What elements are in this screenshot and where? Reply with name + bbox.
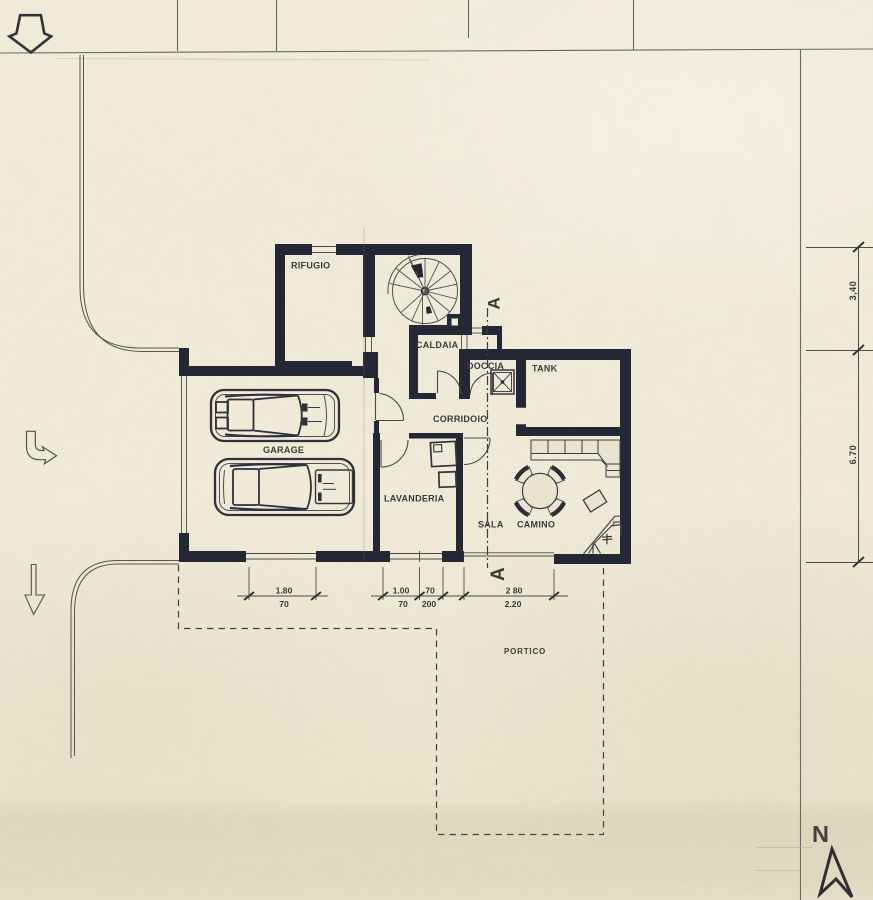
svg-text:3,40: 3,40 [848,281,858,301]
svg-text:PORTICO: PORTICO [504,647,546,656]
svg-text:CAMINO: CAMINO [517,520,555,530]
svg-text:GARAGE: GARAGE [263,445,304,455]
svg-text:CORRIDOIO: CORRIDOIO [433,414,488,424]
svg-text:LAVANDERIA: LAVANDERIA [384,494,445,504]
svg-text:2 80: 2 80 [506,586,523,596]
svg-text:6.70: 6.70 [848,445,858,465]
svg-text:A: A [485,297,504,309]
svg-text:70: 70 [398,599,408,609]
svg-text:A: A [488,567,509,581]
svg-text:70: 70 [279,599,289,609]
svg-text:RIFUGIO: RIFUGIO [291,261,330,271]
svg-text:1.00: 1.00 [393,586,410,596]
svg-text:2.20: 2.20 [505,599,522,609]
svg-text:DOCCIA: DOCCIA [467,361,504,371]
svg-text:1.80: 1.80 [276,586,293,596]
svg-text:CALDAIA: CALDAIA [416,340,459,350]
svg-text:SALA: SALA [478,520,504,530]
svg-text:TANK: TANK [532,364,558,374]
svg-text:200: 200 [422,599,437,609]
svg-text:70: 70 [425,586,435,596]
